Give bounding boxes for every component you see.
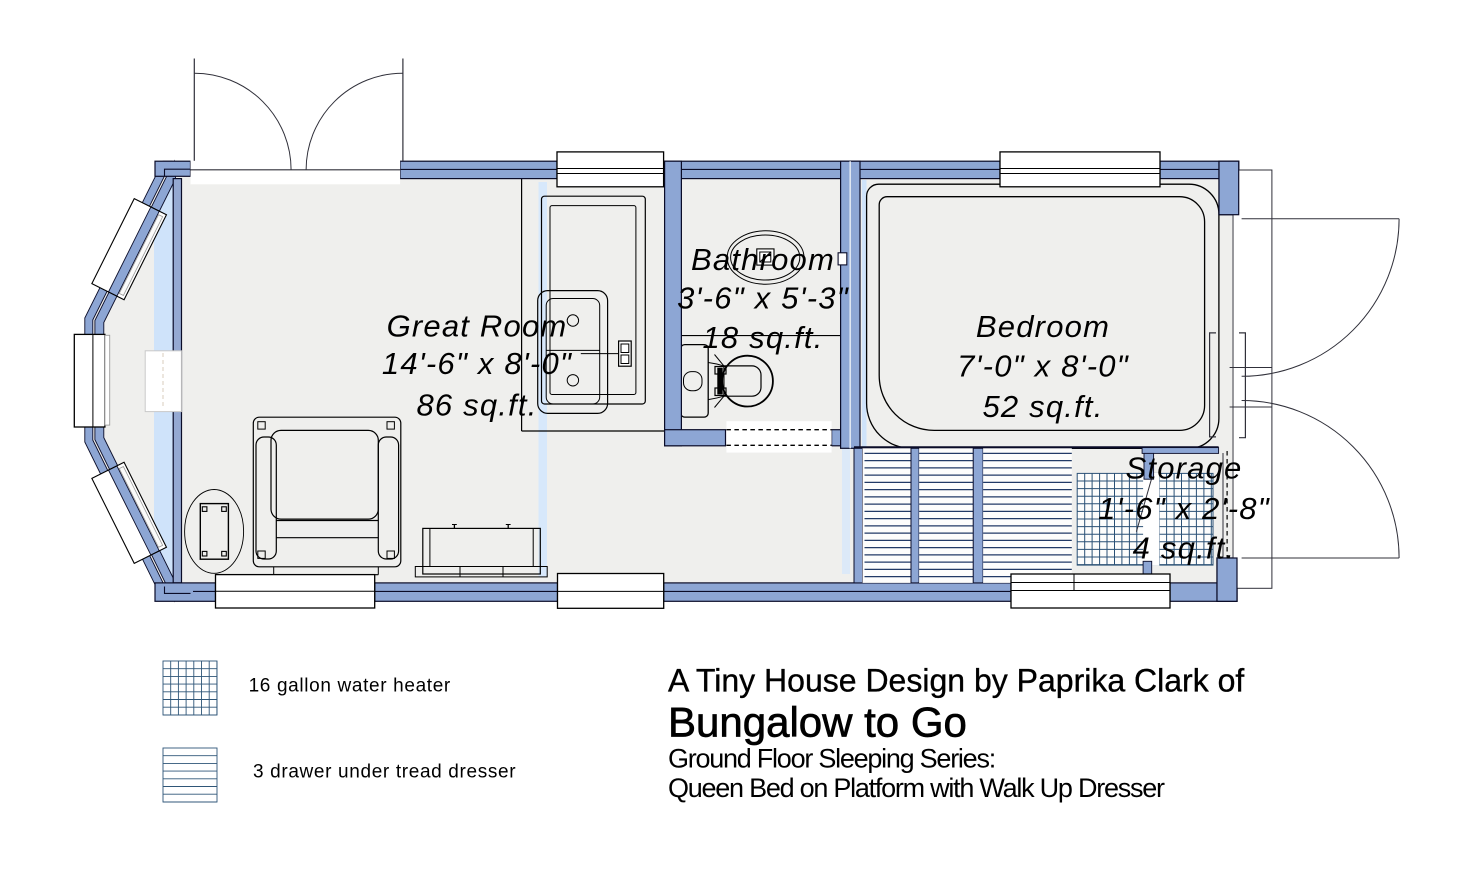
svg-text:Ground Floor Sleeping Series:: Ground Floor Sleeping Series: [668, 744, 995, 774]
svg-text:Bathroom: Bathroom [691, 242, 835, 277]
svg-text:Bedroom: Bedroom [976, 309, 1110, 344]
svg-text:4 sq.ft.: 4 sq.ft. [1133, 531, 1236, 566]
svg-text:3'-6" x 5'-3": 3'-6" x 5'-3" [677, 281, 850, 316]
svg-text:Queen Bed on Platform with Wal: Queen Bed on Platform with Walk Up Dress… [668, 773, 1165, 803]
svg-text:18 sq.ft.: 18 sq.ft. [702, 320, 823, 355]
svg-text:7'-0" x 8'-0": 7'-0" x 8'-0" [957, 349, 1130, 384]
svg-text:Bungalow to Go: Bungalow to Go [668, 698, 967, 745]
svg-text:14'-6" x 8'-0": 14'-6" x 8'-0" [382, 346, 573, 381]
svg-text:Great Room: Great Room [387, 309, 568, 344]
svg-text:1'-6" x 2'-8": 1'-6" x 2'-8" [1098, 491, 1271, 526]
svg-text:16 gallon water heater: 16 gallon water heater [249, 675, 451, 696]
svg-text:Storage: Storage [1126, 451, 1243, 486]
svg-text:52 sq.ft.: 52 sq.ft. [982, 389, 1103, 424]
svg-text:86 sq.ft.: 86 sq.ft. [416, 387, 537, 422]
svg-text:A Tiny House Design by Paprika: A Tiny House Design by Paprika Clark of [668, 663, 1244, 699]
svg-text:3 drawer under tread dresser: 3 drawer under tread dresser [253, 762, 516, 783]
